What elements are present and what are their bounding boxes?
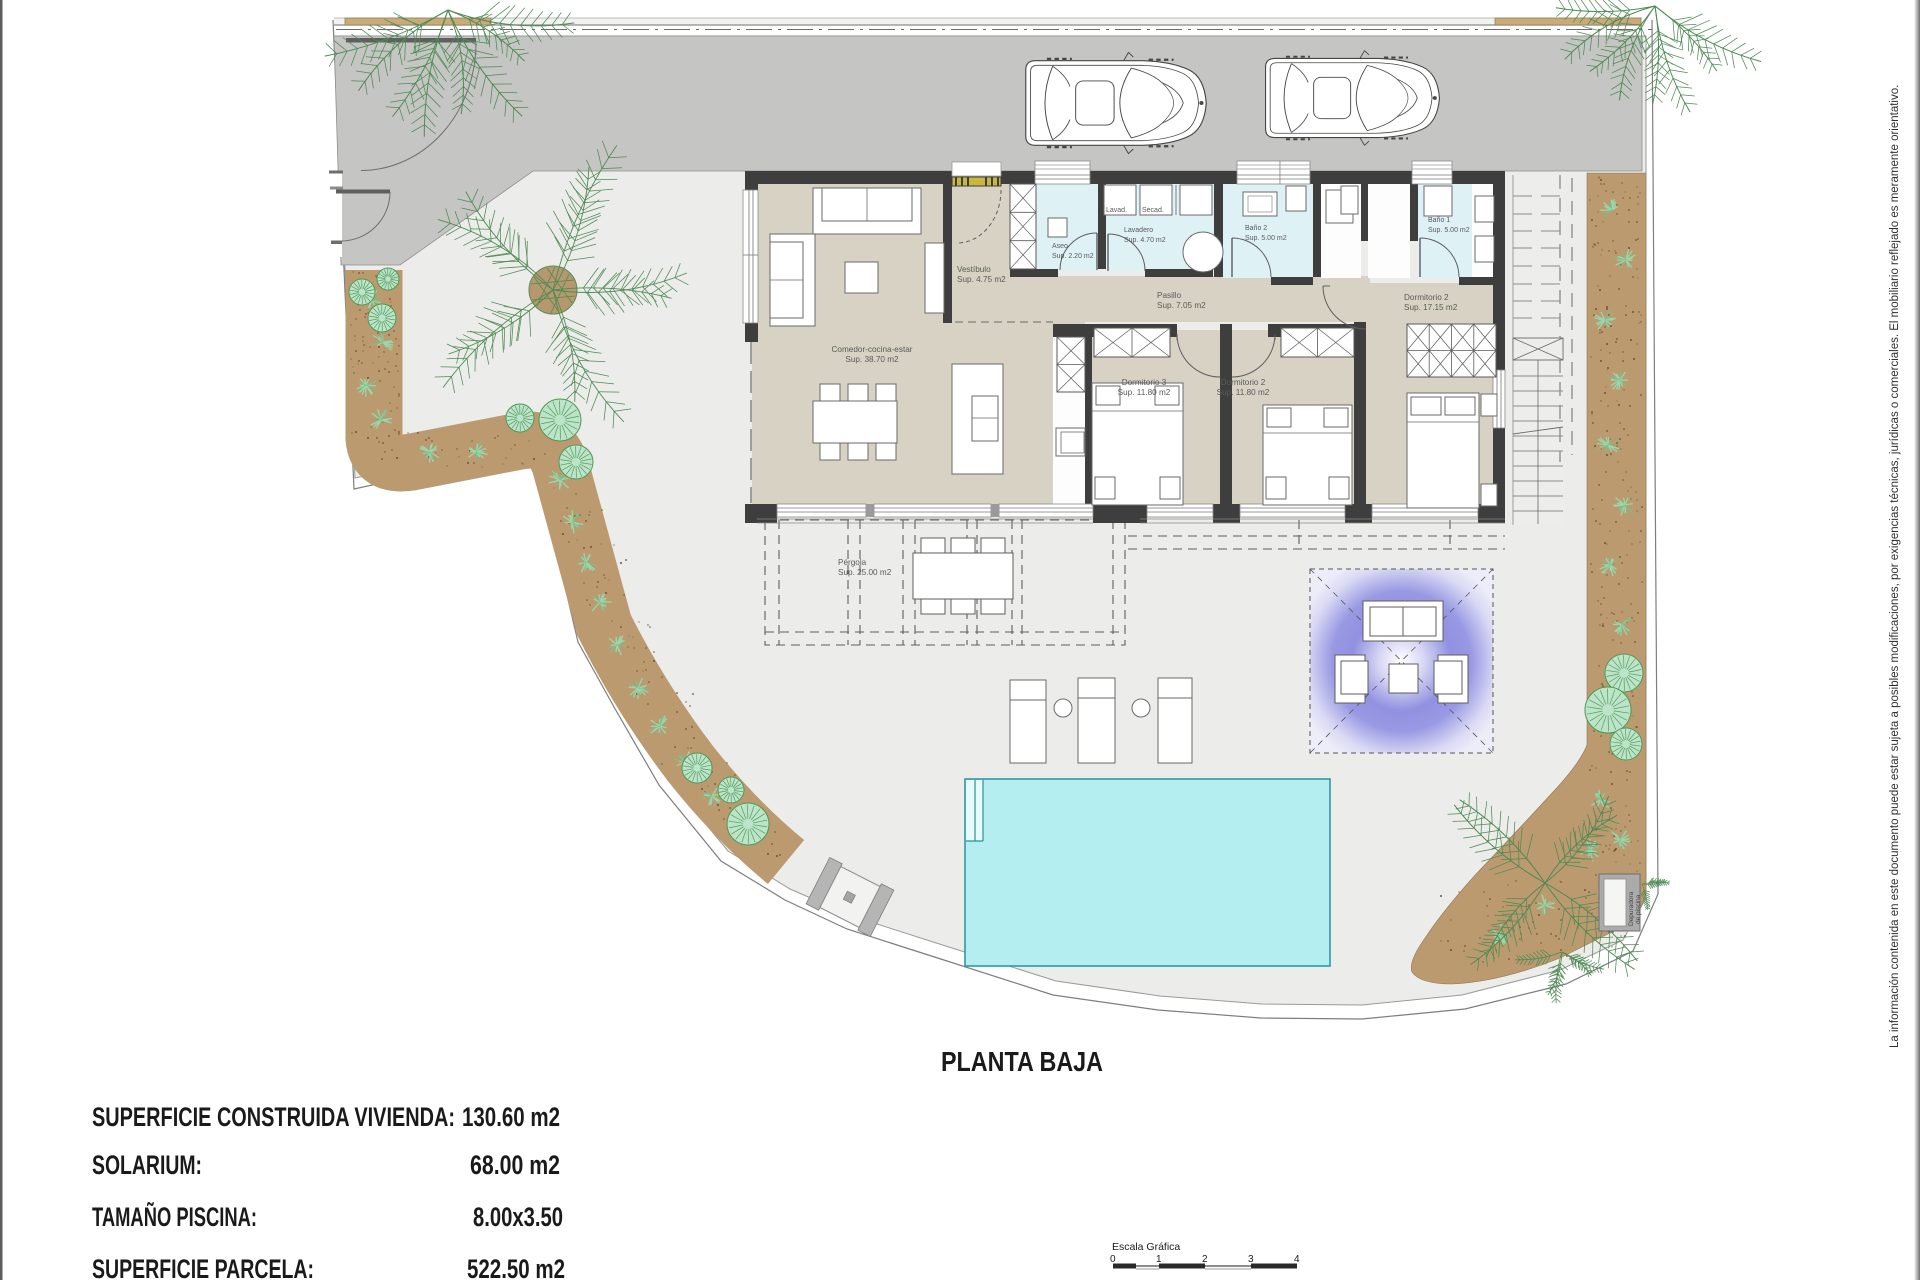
svg-text:Pasillo: Pasillo bbox=[1157, 291, 1182, 300]
svg-text:Sup. 38.70 m2: Sup. 38.70 m2 bbox=[845, 355, 899, 364]
svg-text:130.60 m2: 130.60 m2 bbox=[462, 1102, 560, 1132]
svg-text:Sup. 25.00 m2: Sup. 25.00 m2 bbox=[838, 568, 892, 577]
svg-text:SUPERFICIE CONSTRUIDA VIVIENDA: SUPERFICIE CONSTRUIDA VIVIENDA: bbox=[92, 1102, 455, 1132]
svg-text:Secad.: Secad. bbox=[1142, 207, 1164, 214]
svg-text:Pérgola: Pérgola bbox=[838, 558, 867, 567]
svg-text:Sup. 11.80 m2: Sup. 11.80 m2 bbox=[1118, 388, 1171, 397]
svg-text:3: 3 bbox=[1248, 1254, 1254, 1265]
svg-text:La información contenida en es: La información contenida en este documen… bbox=[1889, 85, 1901, 1048]
svg-text:SUPERFICIE PARCELA:: SUPERFICIE PARCELA: bbox=[92, 1254, 314, 1280]
svg-text:Sup. 2.20 m2: Sup. 2.20 m2 bbox=[1052, 253, 1094, 260]
svg-text:1: 1 bbox=[1156, 1254, 1162, 1265]
svg-text:SOLARIUM:: SOLARIUM: bbox=[92, 1150, 202, 1180]
svg-text:Vestíbulo: Vestíbulo bbox=[957, 265, 991, 274]
svg-text:68.00 m2: 68.00 m2 bbox=[470, 1150, 560, 1180]
svg-text:522.50 m2: 522.50 m2 bbox=[467, 1254, 565, 1280]
svg-text:Baño 1: Baño 1 bbox=[1428, 217, 1450, 224]
svg-text:0: 0 bbox=[1110, 1254, 1116, 1265]
svg-text:Lavad.: Lavad. bbox=[1106, 207, 1127, 214]
svg-text:Sup. 11.80 m2: Sup. 11.80 m2 bbox=[1217, 388, 1270, 397]
svg-text:Sup. 4.70 m2: Sup. 4.70 m2 bbox=[1124, 237, 1166, 244]
svg-text:Depuradora: Depuradora bbox=[1628, 891, 1635, 926]
svg-text:TAMAÑO PISCINA:: TAMAÑO PISCINA: bbox=[92, 1201, 257, 1232]
svg-text:Comedor-cocina-estar: Comedor-cocina-estar bbox=[832, 345, 913, 354]
svg-text:Sup. 5.00 m2: Sup. 5.00 m2 bbox=[1428, 227, 1470, 234]
svg-text:4: 4 bbox=[1294, 1254, 1300, 1265]
svg-text:Sup. 5.00 m2: Sup. 5.00 m2 bbox=[1245, 235, 1287, 242]
svg-text:Dormitorio 3: Dormitorio 3 bbox=[1122, 378, 1167, 387]
svg-text:2: 2 bbox=[1202, 1254, 1208, 1265]
svg-text:de piscina: de piscina bbox=[1635, 894, 1642, 924]
svg-text:Dormitorio 2: Dormitorio 2 bbox=[1221, 378, 1266, 387]
svg-text:Baño 2: Baño 2 bbox=[1245, 225, 1267, 232]
svg-text:PLANTA BAJA: PLANTA BAJA bbox=[941, 1046, 1103, 1077]
svg-text:Lavadero: Lavadero bbox=[1124, 227, 1153, 234]
svg-text:Aseo: Aseo bbox=[1052, 243, 1068, 250]
svg-text:Sup. 7.05 m2: Sup. 7.05 m2 bbox=[1157, 301, 1206, 310]
svg-text:Escala Gráfica: Escala Gráfica bbox=[1112, 1241, 1180, 1253]
svg-text:Sup. 17.15 m2: Sup. 17.15 m2 bbox=[1404, 303, 1458, 312]
svg-text:8.00x3.50: 8.00x3.50 bbox=[473, 1202, 563, 1232]
svg-text:Dormitorio 2: Dormitorio 2 bbox=[1404, 293, 1449, 302]
svg-text:Sup. 4.75 m2: Sup. 4.75 m2 bbox=[957, 275, 1006, 284]
